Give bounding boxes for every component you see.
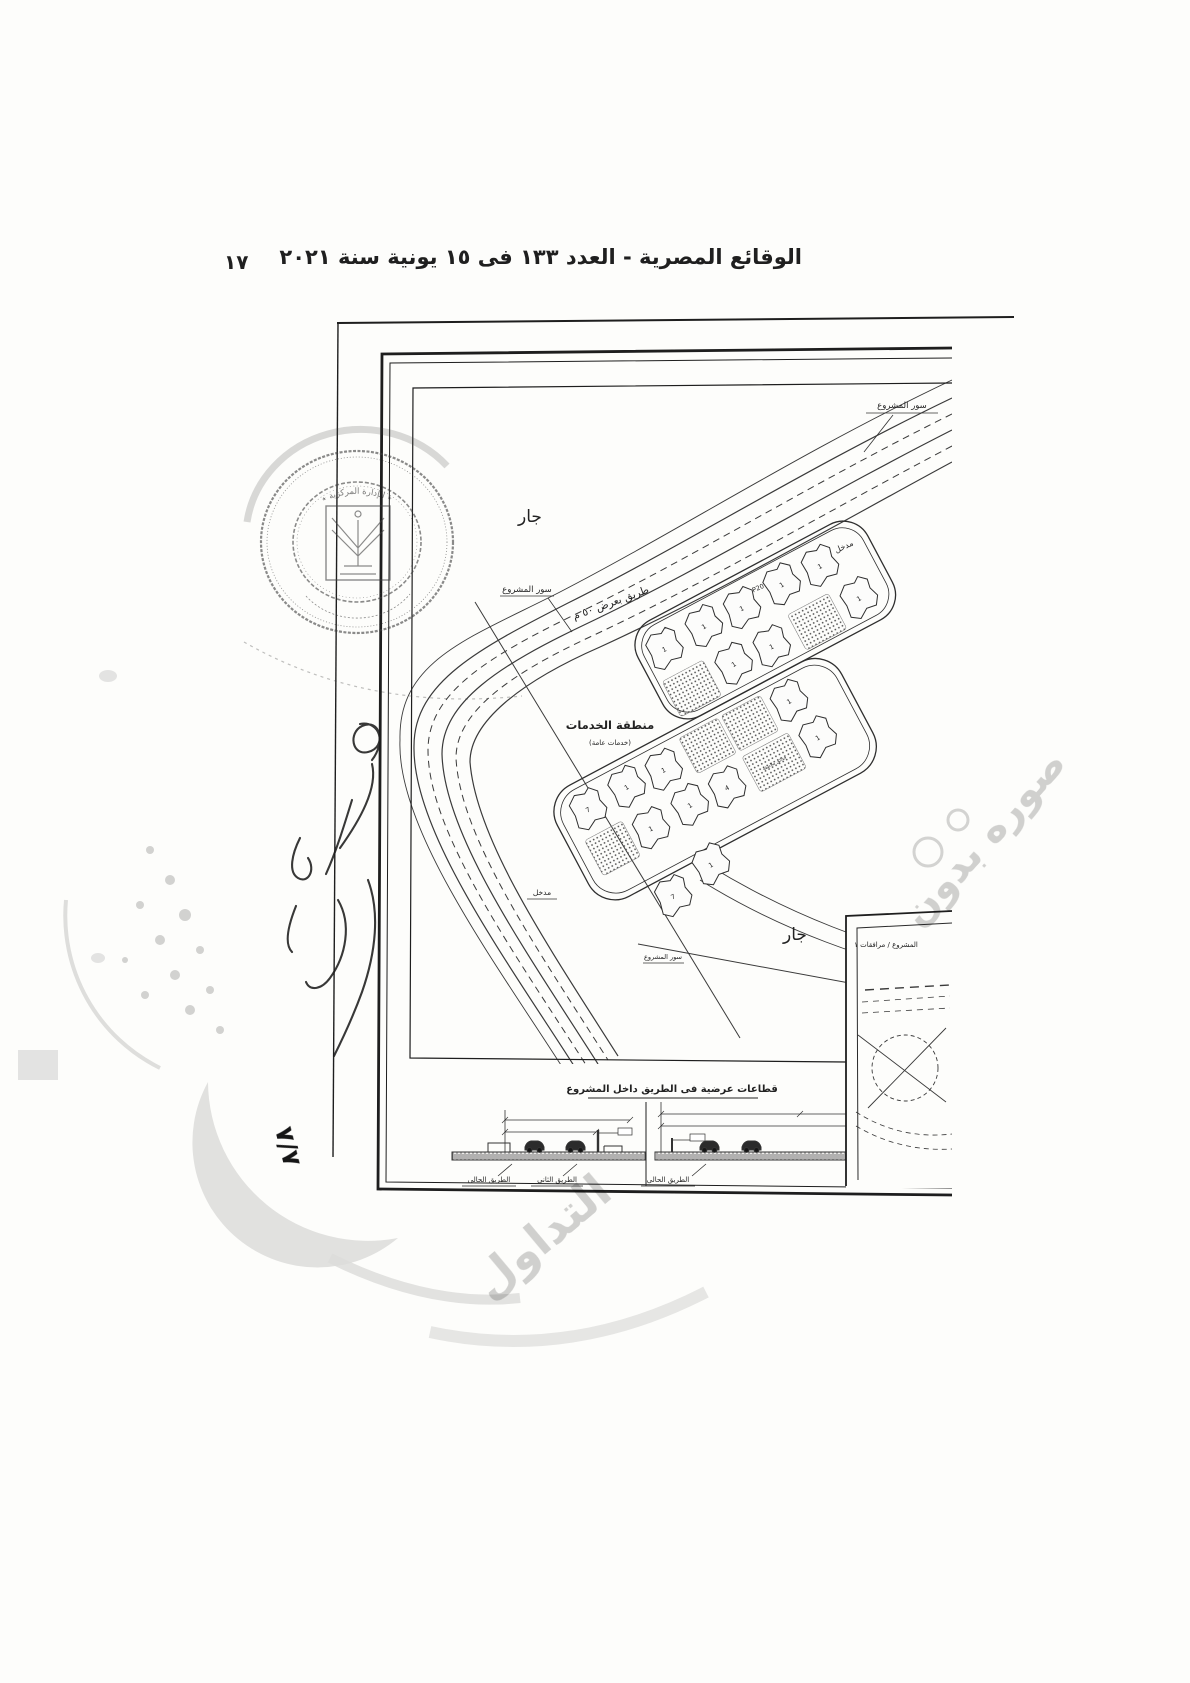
page-number: ١٧ — [224, 250, 248, 274]
neighbor-label-bottom: جار — [782, 925, 807, 945]
neighbor-label-top: جار — [517, 507, 542, 527]
svg-text:٭ الإدارة المركزية ٭: ٭ الإدارة المركزية ٭ — [320, 487, 394, 505]
road-bed — [452, 1152, 645, 1160]
inset-background — [846, 914, 952, 1188]
road-section-label: الطريق الحالى — [647, 1176, 689, 1184]
project-wall-label-top: سور المشروع — [877, 401, 927, 411]
gazette-scanned-page: حدائق ملاصقة 7 1 1 1 1 1 4 1 1 1 1 1 1 1 — [0, 0, 1190, 1683]
building-plot: 4 — [704, 762, 751, 811]
stamp-halo-arc — [244, 642, 522, 699]
map-labels: جار جار سور المشروع سور المشروع سور المش… — [500, 401, 938, 963]
building-plot: 1 — [666, 779, 715, 829]
entrance-label-road: مدخل — [833, 539, 854, 555]
building-plot: 1 — [641, 745, 688, 794]
building-plot: 1 — [758, 559, 807, 609]
building-plot: 1 — [641, 624, 688, 673]
cross-sections-title: قطاعات عرضية فى الطريق داخل المشروع — [566, 1084, 778, 1095]
project-wall-label-bottom: سور المشروع — [644, 953, 682, 961]
label-leader — [864, 415, 893, 452]
stamp-arc-text: ٭ الإدارة المركزية ٭ — [320, 487, 394, 505]
garden-plot — [662, 660, 721, 717]
building-plot: 1 — [628, 803, 675, 852]
project-wall-label-left: سور المشروع — [502, 585, 552, 595]
road-section-label: الطريق الحالى — [468, 1176, 510, 1184]
building-plot: 7 — [565, 784, 612, 833]
building-plot: 1 — [680, 601, 728, 651]
services-area-subtitle: (خدمات عامة) — [589, 739, 631, 747]
garden-plots — [536, 593, 896, 876]
inset-title: المشروع / مرافقات ١ — [854, 941, 918, 949]
garden-plot — [585, 821, 641, 876]
road-width-label: طريق بعرض ٥٠ م — [571, 584, 650, 623]
entrance-label-south: مدخل — [533, 888, 551, 897]
map-area: حدائق ملاصقة 7 1 1 1 1 1 4 1 1 1 1 1 1 1 — [378, 348, 984, 1195]
building-plot: 7 — [650, 871, 697, 920]
inset-location-map: المشروع / مرافقات ١ — [846, 911, 952, 1188]
building-plot: 1 — [710, 638, 759, 688]
garden-plot — [788, 593, 847, 650]
building-plot: 1 — [749, 621, 796, 670]
building-plot: 1 — [603, 761, 652, 811]
building-plot: 1 — [687, 839, 736, 889]
internal-loop-roads — [493, 511, 965, 910]
watermark-dots — [122, 846, 224, 1034]
services-area-title: منطقة الخدمات — [566, 718, 654, 732]
gazette-header-title: الوقائع المصرية - العدد ١٣٣ فى ١٥ يونية … — [322, 245, 802, 269]
stamp-smear — [247, 429, 447, 522]
building-plot: 1 — [794, 712, 843, 762]
building-plot: 1 — [765, 675, 813, 725]
official-stamp: ٭ الإدارة المركزية ٭ — [244, 429, 522, 698]
